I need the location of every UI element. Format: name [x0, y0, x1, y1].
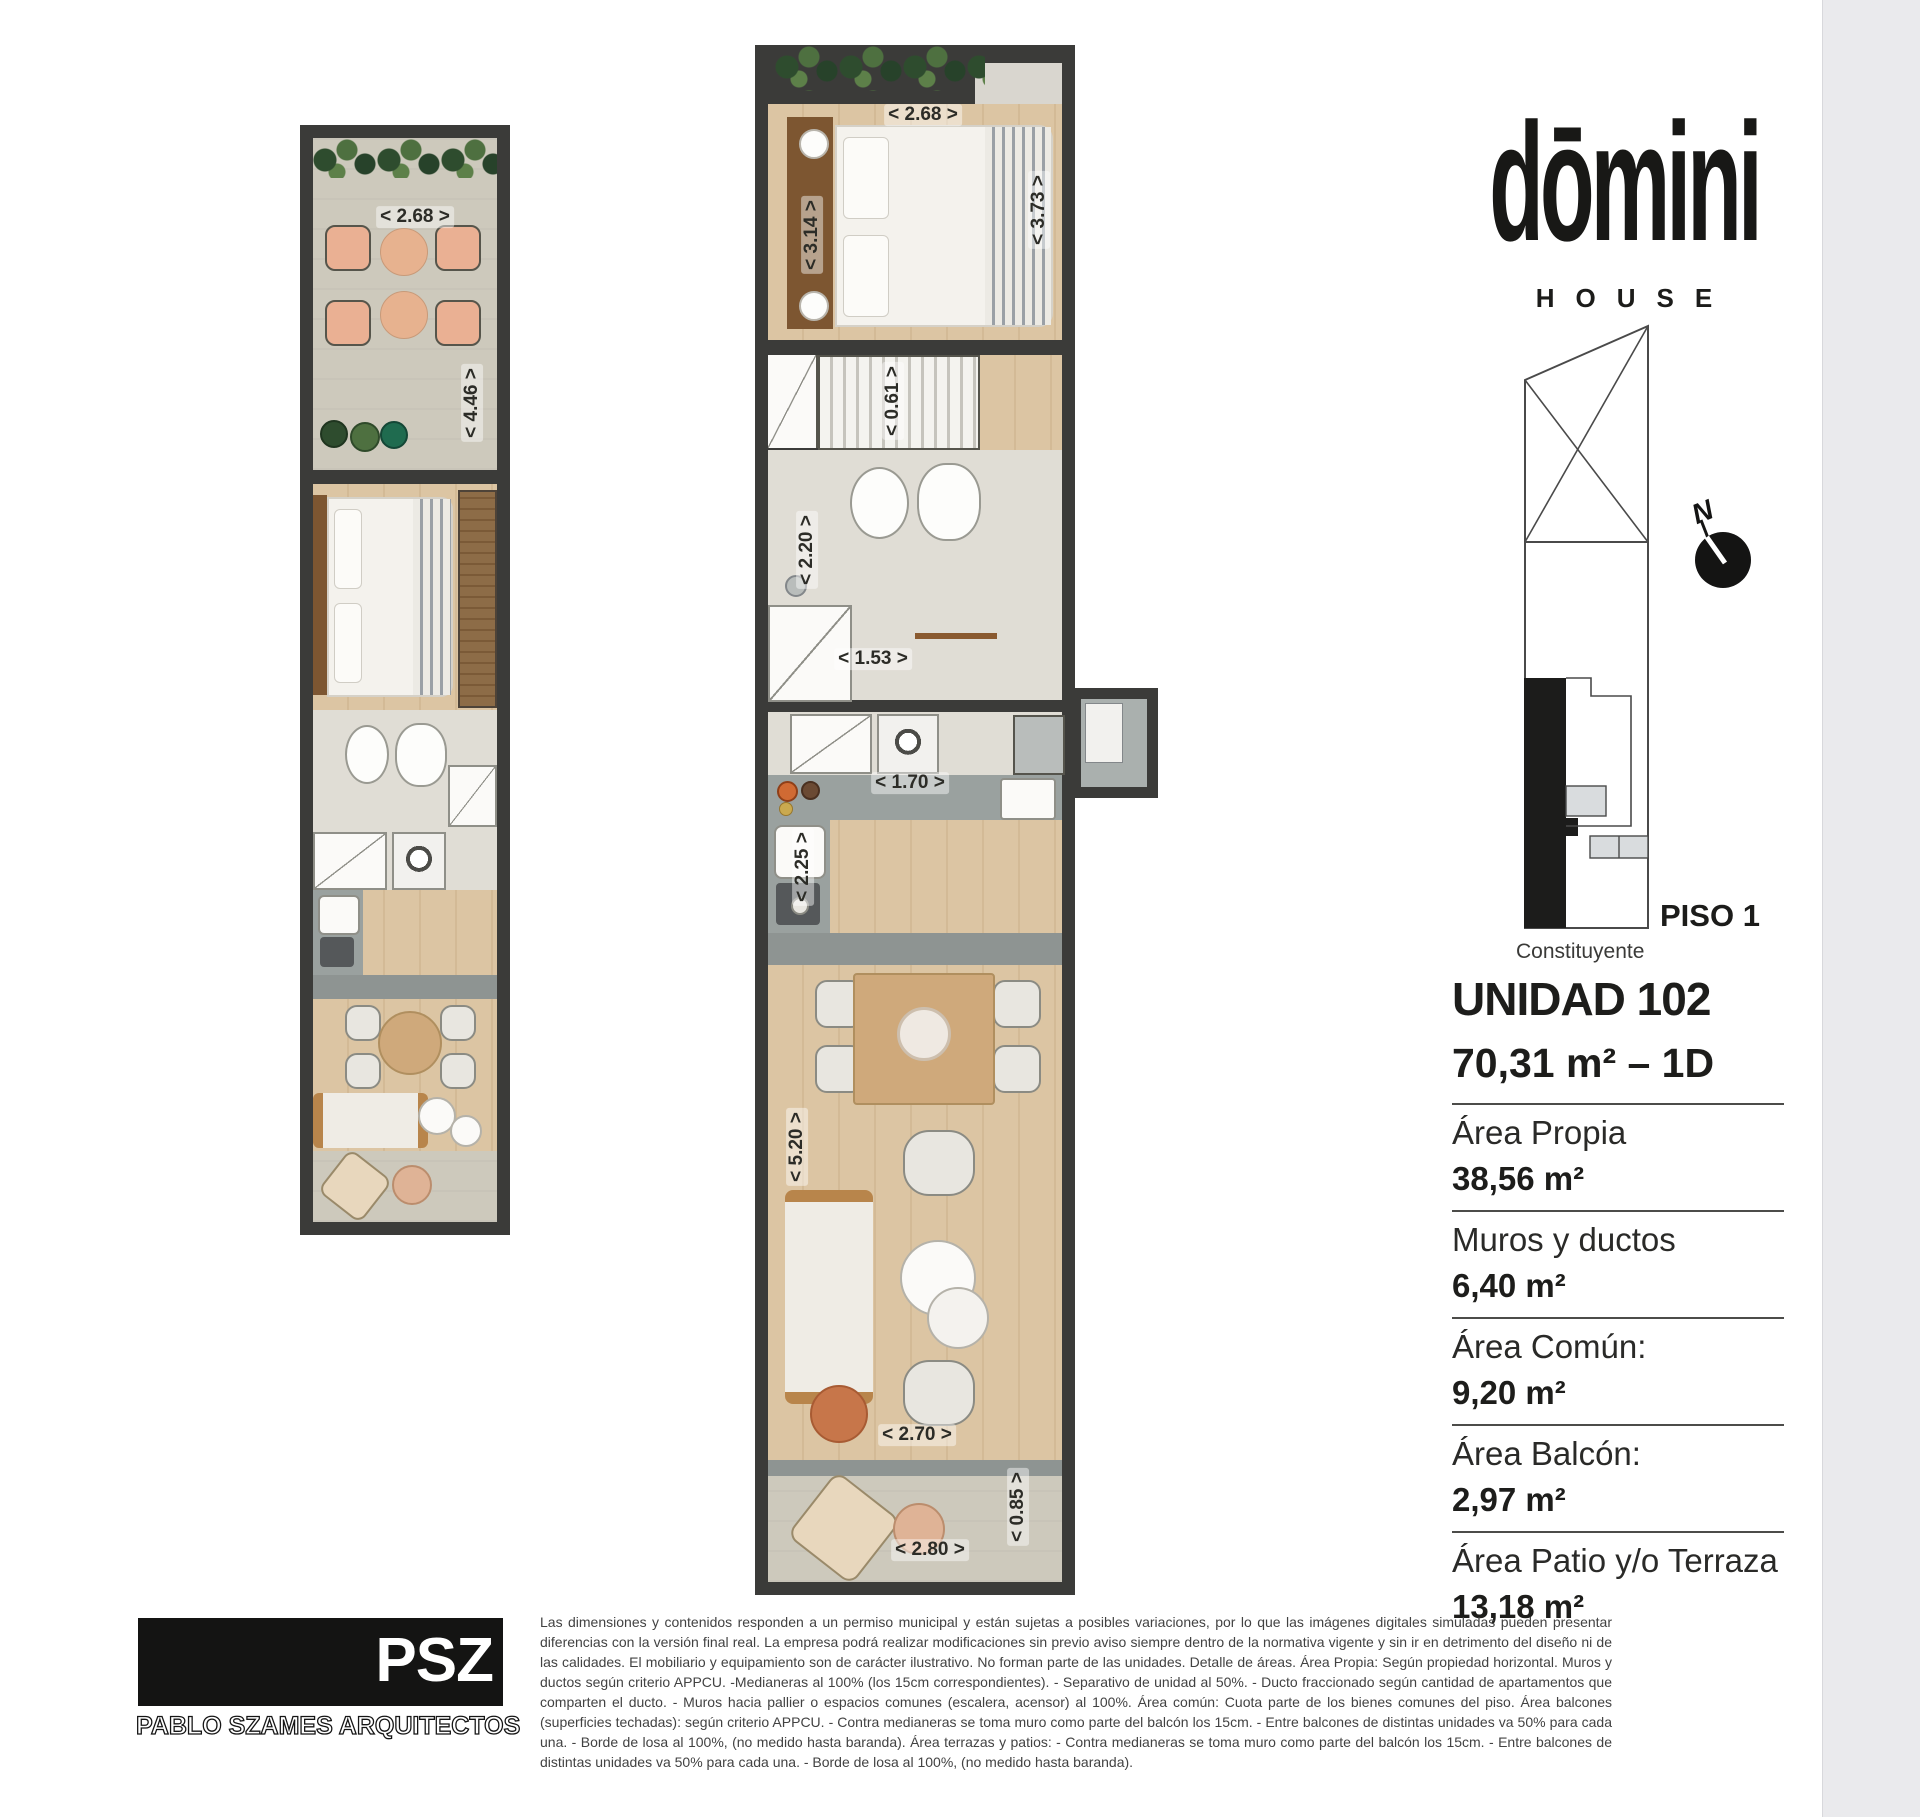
dim-label: < 2.68 > — [884, 104, 962, 126]
area-label: Área Común: — [1452, 1328, 1784, 1366]
stove-burner-icon — [777, 781, 798, 802]
terrace-table-icon — [380, 291, 428, 339]
wardrobe-icon — [458, 490, 497, 708]
dining-chair-icon — [440, 1005, 476, 1041]
plant-pot-icon — [380, 421, 408, 449]
sofa-icon — [785, 1190, 873, 1404]
kitchen-sink-icon — [320, 937, 354, 967]
lamp-icon — [799, 291, 829, 321]
area-row: Área Propia 38,56 m² — [1452, 1103, 1784, 1210]
north-compass-icon: N — [1685, 488, 1765, 603]
terrace-chair-icon — [325, 225, 371, 271]
area-value: 2,97 m² — [1452, 1481, 1784, 1519]
unit-info-panel: UNIDAD 102 70,31 m² – 1D Área Propia 38,… — [1452, 972, 1784, 1638]
dining-chair-icon — [345, 1005, 381, 1041]
area-value: 38,56 m² — [1452, 1160, 1784, 1198]
area-value: 6,40 m² — [1452, 1267, 1784, 1305]
coffee-table-icon — [927, 1287, 989, 1349]
dim-label: < 2.70 > — [878, 1424, 956, 1446]
terrace-chair-icon — [325, 300, 371, 346]
terrace-chair-icon — [435, 300, 481, 346]
dim-label: < 2.68 > — [376, 206, 454, 228]
dining-chair-icon — [345, 1053, 381, 1089]
toilet-icon — [917, 463, 981, 541]
area-label: Área Patio y/o Terraza — [1452, 1542, 1784, 1580]
unit-title: UNIDAD 102 — [1452, 972, 1784, 1026]
area-row: Área Balcón: 2,97 m² — [1452, 1424, 1784, 1531]
dim-label: < 3.73 > — [1028, 171, 1050, 249]
kitchen-island — [313, 975, 497, 999]
headboard-icon — [313, 495, 327, 695]
duct-box — [1013, 715, 1065, 775]
area-row: Muros y ductos 6,40 m² — [1452, 1210, 1784, 1317]
terrace-table-icon — [380, 228, 428, 276]
page-edge-strip — [1822, 0, 1920, 1817]
kitchen-island — [768, 933, 1062, 965]
dining-table-icon — [378, 1011, 442, 1075]
shared-duct-box — [1070, 688, 1158, 798]
washer-icon — [392, 832, 446, 890]
coffee-table-icon — [450, 1115, 482, 1147]
floor-plan-left: < 2.68 > < 4.46 > — [300, 125, 510, 1235]
unit-subtitle: 70,31 m² – 1D — [1452, 1040, 1784, 1103]
brand-sub-label: HOUSE — [1448, 283, 1800, 314]
dining-chair-icon — [993, 1045, 1041, 1093]
area-label: Área Propia — [1452, 1114, 1784, 1152]
plant-pot-icon — [350, 422, 380, 452]
sofa-icon — [313, 1093, 428, 1148]
pouf-icon — [810, 1385, 868, 1443]
dim-label: < 1.70 > — [871, 772, 949, 794]
dim-label: < 2.20 > — [796, 511, 818, 589]
sink-icon — [345, 725, 389, 784]
dining-chair-icon — [993, 980, 1041, 1028]
side-table-icon — [392, 1165, 432, 1205]
architect-name: PABLO SZAMES ARQUITECTOS — [136, 1712, 516, 1741]
area-row: Área Común: 9,20 m² — [1452, 1317, 1784, 1424]
hedge-plants-icon — [775, 45, 985, 91]
linen-closet-icon — [768, 355, 818, 448]
fridge-icon — [318, 895, 360, 935]
dim-label: < 1.53 > — [834, 648, 912, 670]
floor-plan-unit-102: < 2.68 > < 3.14 > < 3.73 > < 0.61 > < 2.… — [755, 45, 1075, 1595]
dim-label: < 5.20 > — [786, 1108, 808, 1186]
shower-icon — [448, 765, 497, 827]
towel-bar-icon — [915, 633, 997, 639]
legal-disclaimer: Las dimensiones y contenidos responden a… — [540, 1612, 1612, 1772]
architect-logo: PSZ — [138, 1618, 503, 1706]
shower-icon — [790, 714, 872, 774]
floor-label: PISO 1 — [1660, 898, 1760, 934]
dim-label: < 2.80 > — [891, 1539, 969, 1561]
top-terrace-floor — [975, 63, 1062, 105]
area-label: Área Balcón: — [1452, 1435, 1784, 1473]
lamp-icon — [799, 129, 829, 159]
bowl-icon — [779, 802, 793, 816]
hall-floor — [980, 355, 1062, 450]
dining-chair-icon — [440, 1053, 476, 1089]
dim-label: < 3.14 > — [801, 196, 823, 274]
dim-label: < 0.61 > — [882, 362, 904, 440]
toilet-icon — [395, 723, 447, 787]
table-decor-icon — [897, 1007, 951, 1061]
building-key-diagram — [1508, 318, 1678, 978]
stove-burner-icon — [801, 781, 820, 800]
sink-icon — [850, 467, 909, 539]
area-value: 9,20 m² — [1452, 1374, 1784, 1412]
street-label: Constituyente — [1516, 940, 1644, 964]
dim-label: < 0.85 > — [1007, 1468, 1029, 1546]
shower-icon — [313, 832, 387, 890]
dim-label: < 4.46 > — [461, 364, 483, 442]
oven-icon — [1000, 778, 1056, 820]
plant-pot-icon — [320, 420, 348, 448]
area-label: Muros y ductos — [1452, 1221, 1784, 1259]
armchair-icon — [903, 1360, 975, 1426]
bed-icon — [835, 125, 1053, 327]
armchair-icon — [903, 1130, 975, 1196]
hedge-plants-icon — [313, 138, 497, 178]
bed-icon — [327, 497, 453, 697]
dim-label: < 2.25 > — [792, 828, 814, 906]
washer-icon — [877, 714, 939, 774]
terrace-chair-icon — [435, 225, 481, 271]
